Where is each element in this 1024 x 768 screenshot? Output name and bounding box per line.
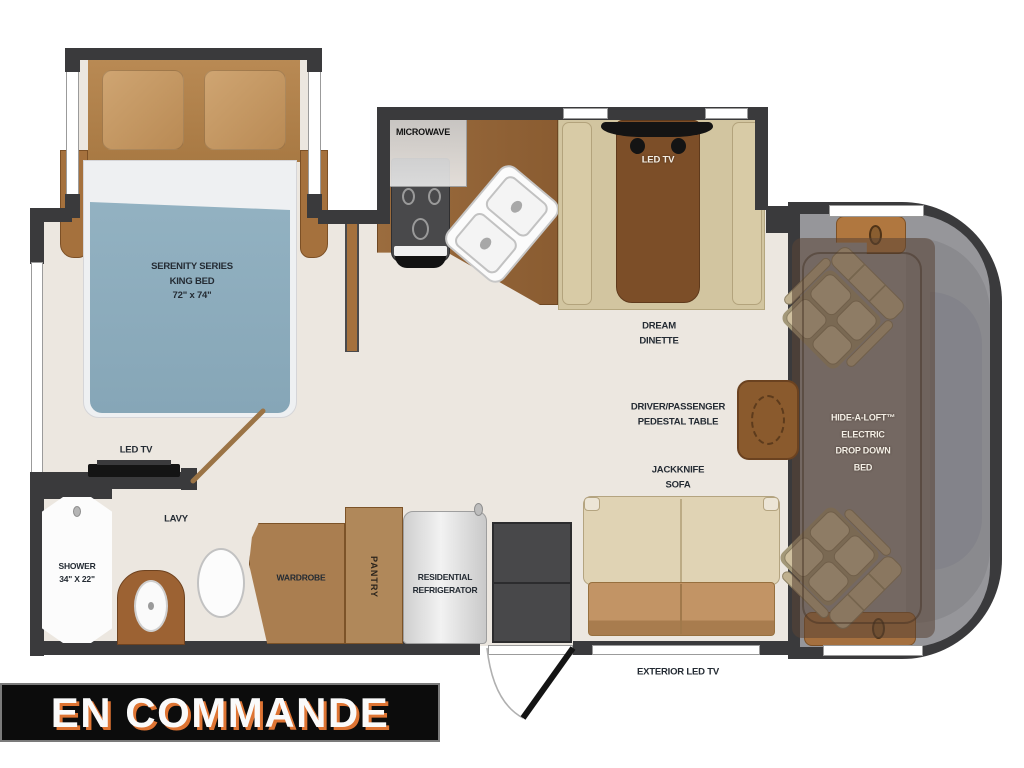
wardrobe-label: WARDROBE: [277, 571, 326, 584]
refrigerator-label: RESIDENTIAL REFRIGERATOR: [413, 571, 478, 597]
microwave: [380, 113, 467, 187]
entry-step-well: [492, 522, 572, 643]
vanity-sink-drain: [148, 602, 154, 610]
pedestal-table-label-line2: PEDESTAL TABLE: [631, 415, 725, 430]
stove-burner-center: [412, 218, 429, 240]
king-bed-label: SERENITY SERIES KING BED 72" x 74": [151, 260, 233, 304]
pedestal-table-label-line1: DRIVER/PASSENGER: [631, 400, 725, 415]
stove-front: [395, 256, 446, 268]
king-bed-label-line3: 72" x 74": [151, 289, 233, 304]
entry-step-divider: [494, 582, 570, 584]
dinette-label-line1: DREAM: [639, 319, 678, 334]
king-bed-label-line1: SERENITY SERIES: [151, 260, 233, 275]
shower-label-line1: SHOWER: [58, 560, 95, 573]
status-banner-text: EN COMMANDE: [51, 689, 390, 737]
stove-handle: [394, 246, 447, 256]
cab-window-bottom: [823, 645, 923, 656]
slideout-wall-left: [66, 58, 79, 214]
refrigerator-label-line1: RESIDENTIAL: [413, 571, 478, 584]
bedroom-tv-label: LED TV: [120, 444, 153, 459]
lavy-label: LAVY: [164, 513, 188, 528]
sofa-label-line2: SOFA: [652, 478, 705, 493]
slideout-top-wall: [65, 48, 322, 60]
hide-a-loft-line4: BED: [831, 460, 895, 477]
jackknife-sofa: [583, 496, 780, 643]
sofa-arm-cap-left: [584, 497, 600, 511]
microwave-label: MICROWAVE: [396, 126, 450, 140]
left-wall-upper: [30, 208, 44, 264]
hide-a-loft-line1: HIDE-A-LOFT™: [831, 410, 895, 427]
hide-a-loft-label: HIDE-A-LOFT™ ELECTRIC DROP DOWN BED: [831, 410, 895, 477]
kitchen-window-2: [705, 108, 748, 119]
dinette-tv-mount-left: [630, 138, 645, 154]
kitchen-west-wall: [377, 107, 390, 224]
hide-a-loft-line2: ELECTRIC: [831, 426, 895, 443]
pedestal-table-label: DRIVER/PASSENGER PEDESTAL TABLE: [631, 400, 725, 429]
bed-pillow-left: [102, 70, 184, 150]
dinette-label-line2: DINETTE: [639, 334, 678, 349]
king-bed-label-line2: KING BED: [151, 275, 233, 290]
sofa-back-divider: [680, 499, 682, 582]
pedestal-table-base: [751, 395, 785, 445]
dinette-east-wall: [755, 107, 768, 210]
bedroom-pocket-door: [345, 224, 359, 352]
toilet: [197, 548, 245, 618]
status-banner: EN COMMANDE: [0, 683, 440, 742]
shower-label-line2: 34" X 22": [58, 573, 95, 586]
slideout-cap-tr: [307, 48, 322, 72]
refrigerator-label-line2: REFRIGERATOR: [413, 584, 478, 597]
dinette-tv-mount-right: [671, 138, 686, 154]
bedroom-tv-base: [97, 460, 171, 465]
stove-burner-right: [428, 188, 441, 205]
bedroom-stub-wall: [318, 210, 390, 224]
shower-head-dot: [73, 506, 81, 517]
slideout-wall-right: [308, 58, 321, 214]
entry-door: [460, 630, 590, 750]
dinette-tv-bar: [601, 122, 713, 137]
sofa-arm-cap-right: [763, 497, 779, 511]
bed-pillow-right: [204, 70, 286, 150]
dinette-tv-label: LED TV: [642, 154, 675, 169]
cab-window-top: [829, 205, 924, 217]
kitchen-window-1: [563, 108, 608, 119]
bottom-window-sofa: [592, 645, 760, 655]
dinette-label: DREAM DINETTE: [639, 319, 678, 348]
exterior-tv-label: EXTERIOR LED TV: [637, 666, 719, 681]
cab-connector-stub: [766, 206, 790, 233]
dinette-bench-left: [562, 122, 592, 305]
sofa-label: JACKKNIFE SOFA: [652, 463, 705, 492]
sofa-seat-divider: [680, 584, 682, 634]
hide-a-loft-line3: DROP DOWN: [831, 443, 895, 460]
left-wall-lower: [30, 472, 44, 656]
slideout-cap-tl: [65, 48, 80, 72]
rv-floorplan-canvas: MICROWAVE LED TV DREAM DINETTE SERENITY …: [0, 0, 1024, 768]
stove-burner-left: [402, 188, 415, 205]
dinette-table: [616, 120, 700, 303]
bathroom-door: [185, 405, 270, 490]
refrigerator-hinge: [474, 503, 483, 516]
left-wall-window: [31, 262, 43, 474]
pantry-label: PANTRY: [369, 556, 379, 598]
pedestal-table: [737, 380, 799, 460]
cab-console: [930, 292, 982, 570]
sofa-label-line1: JACKKNIFE: [652, 463, 705, 478]
bedroom-tv-bar: [88, 464, 180, 477]
shower-label: SHOWER 34" X 22": [58, 560, 95, 586]
